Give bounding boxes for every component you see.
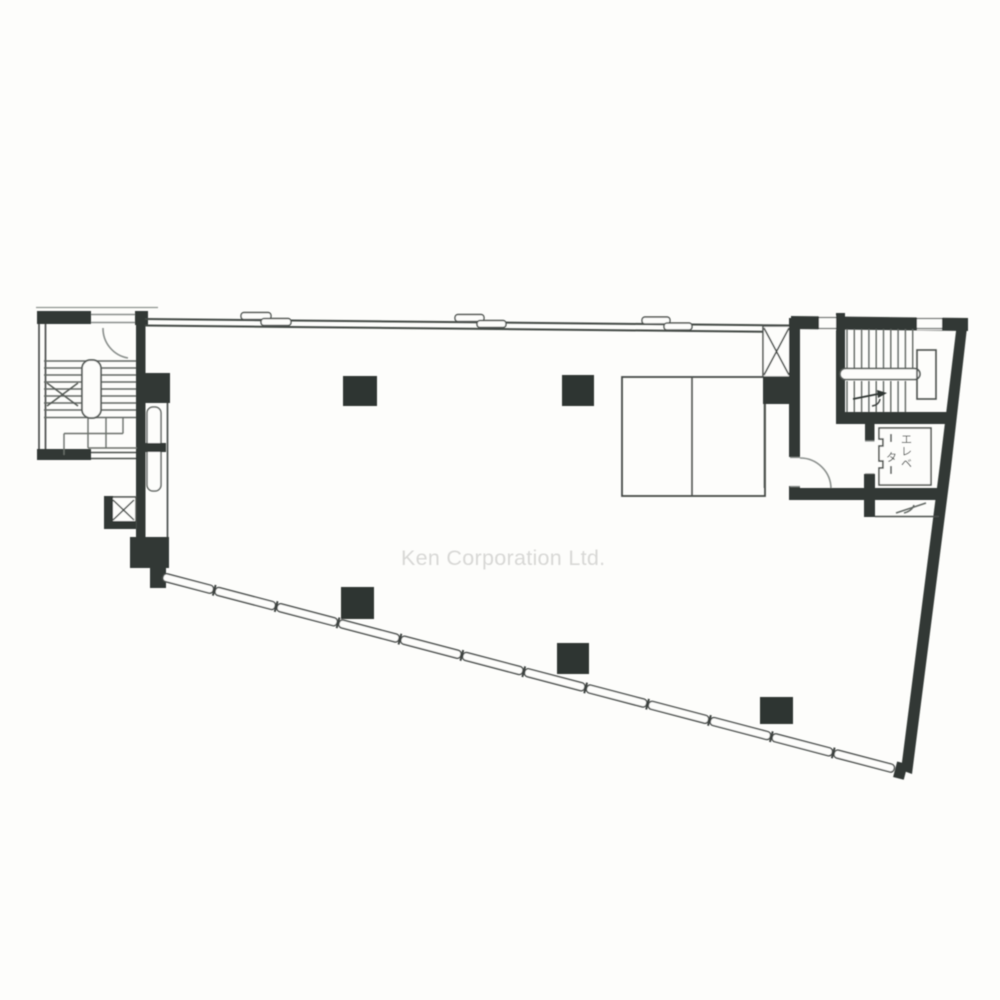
svg-text:レ: レ: [901, 446, 912, 458]
svg-text:エ: エ: [901, 434, 912, 446]
svg-text:タ: タ: [886, 451, 897, 464]
svg-text:ベ: ベ: [901, 458, 912, 470]
svg-text:Ken Corporation Ltd.: Ken Corporation Ltd.: [401, 546, 605, 570]
